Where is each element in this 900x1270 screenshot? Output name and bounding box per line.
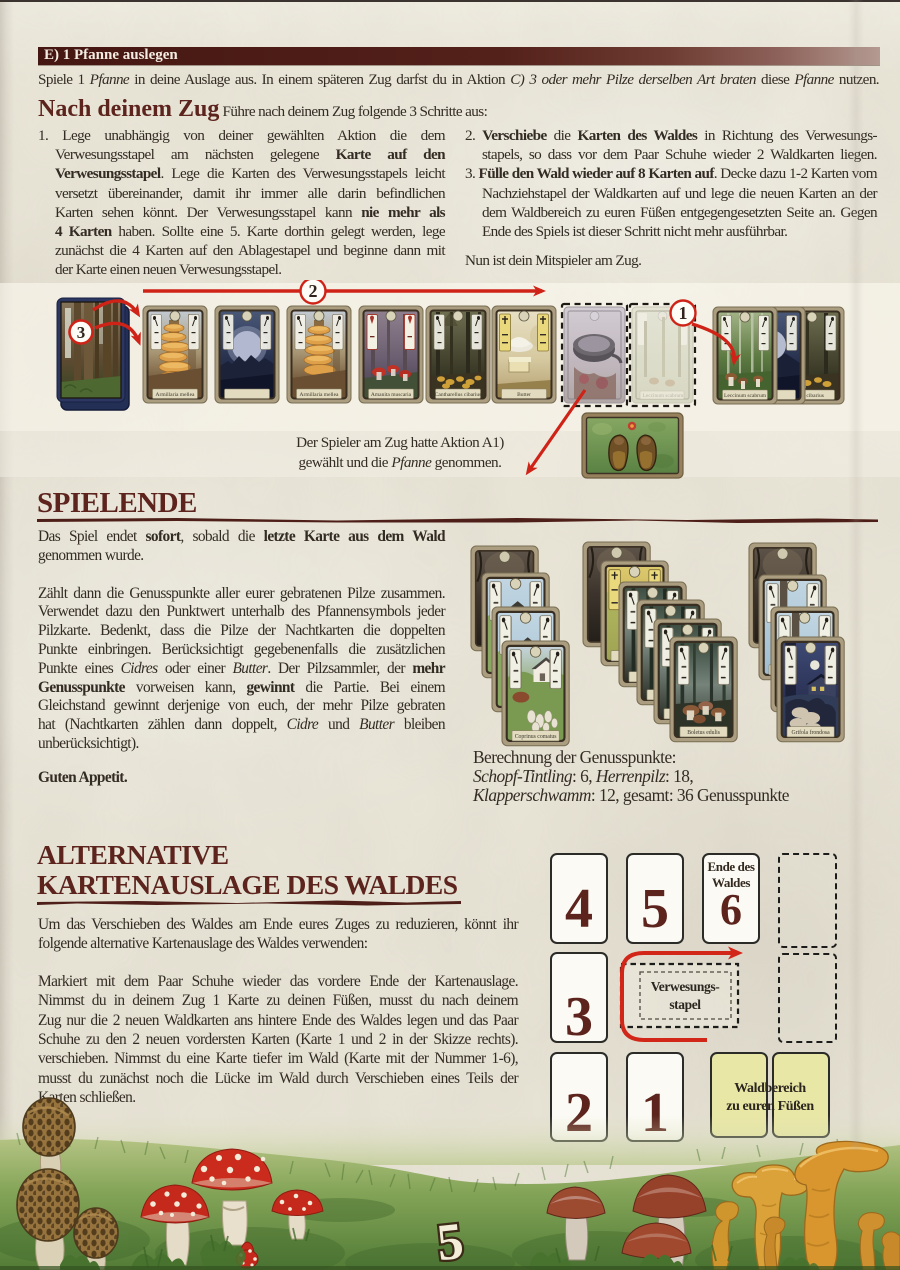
svg-text:Boletus edulis: Boletus edulis — [687, 730, 721, 736]
svg-text:Butter: Butter — [517, 392, 531, 398]
svg-text:Leccinum scabrum: Leccinum scabrum — [643, 393, 684, 399]
svg-text:Armillaria mellea: Armillaria mellea — [300, 392, 339, 398]
svg-text:Amanita muscaria: Amanita muscaria — [371, 392, 412, 398]
svg-text:3: 3 — [77, 323, 86, 342]
svg-text:Armillaria mellea: Armillaria mellea — [156, 392, 195, 398]
svg-text:2: 2 — [309, 281, 318, 301]
svg-text:Grifola frondosa: Grifola frondosa — [791, 729, 830, 736]
svg-text:Leccinum scabrum: Leccinum scabrum — [724, 393, 767, 399]
svg-text:Cantharellus cibarius: Cantharellus cibarius — [435, 392, 482, 398]
svg-text:5: 5 — [434, 1213, 466, 1270]
svg-text:1: 1 — [679, 303, 688, 323]
svg-text:Coprinus comatus: Coprinus comatus — [515, 734, 557, 740]
